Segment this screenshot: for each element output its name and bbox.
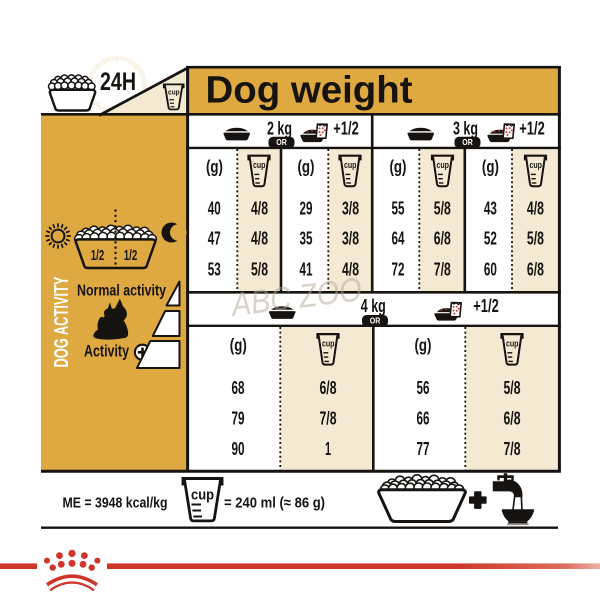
svg-text:60: 60 xyxy=(484,260,497,280)
svg-text:5/8: 5/8 xyxy=(504,378,521,398)
svg-text:6/8: 6/8 xyxy=(320,378,337,398)
svg-text:64: 64 xyxy=(392,229,405,249)
svg-text:(g): (g) xyxy=(415,335,432,355)
svg-text:DOG ACTIVITY: DOG ACTIVITY xyxy=(50,276,73,367)
svg-text:(g): (g) xyxy=(298,156,315,176)
svg-text:79: 79 xyxy=(232,409,245,429)
svg-text:72: 72 xyxy=(392,260,405,280)
svg-text:(g): (g) xyxy=(206,156,223,176)
svg-text:40: 40 xyxy=(208,198,221,218)
svg-text:3 kg: 3 kg xyxy=(453,119,478,139)
svg-text:47: 47 xyxy=(208,229,221,249)
svg-text:7/8: 7/8 xyxy=(504,439,521,459)
svg-text:4/8: 4/8 xyxy=(251,198,268,218)
svg-text:77: 77 xyxy=(417,439,430,459)
svg-text:90: 90 xyxy=(232,439,245,459)
svg-text:Activity: Activity xyxy=(84,343,130,361)
svg-text:1: 1 xyxy=(325,439,331,459)
svg-text:66: 66 xyxy=(417,409,430,429)
svg-text:1/2: 1/2 xyxy=(124,248,138,264)
svg-text:56: 56 xyxy=(417,378,430,398)
svg-text:OR: OR xyxy=(462,137,473,147)
svg-text:53: 53 xyxy=(208,260,221,280)
svg-text:3/8: 3/8 xyxy=(342,229,359,249)
svg-text:1/2: 1/2 xyxy=(91,248,105,264)
svg-text:OR: OR xyxy=(276,137,287,147)
svg-text:ME = 3948 kcal/kg: ME = 3948 kcal/kg xyxy=(63,494,168,511)
svg-text:= 240 ml (≈ 86 g): = 240 ml (≈ 86 g) xyxy=(224,495,325,512)
svg-text:7/8: 7/8 xyxy=(320,409,337,429)
svg-text:(g): (g) xyxy=(230,335,247,355)
svg-text:+1/2: +1/2 xyxy=(519,119,545,139)
svg-text:35: 35 xyxy=(300,229,313,249)
svg-text:5/8: 5/8 xyxy=(527,229,544,249)
svg-text:52: 52 xyxy=(484,229,497,249)
svg-text:6/8: 6/8 xyxy=(527,260,544,280)
svg-text:6/8: 6/8 xyxy=(504,409,521,429)
svg-text:55: 55 xyxy=(392,198,405,218)
svg-text:Dog weight: Dog weight xyxy=(206,70,413,112)
svg-text:6/8: 6/8 xyxy=(434,229,451,249)
svg-text:5/8: 5/8 xyxy=(251,260,268,280)
svg-text:3/8: 3/8 xyxy=(342,198,359,218)
svg-text:+1/2: +1/2 xyxy=(473,296,499,316)
svg-text:+1/2: +1/2 xyxy=(333,119,359,139)
svg-text:29: 29 xyxy=(300,198,313,218)
svg-text:68: 68 xyxy=(232,378,245,398)
svg-text:4/8: 4/8 xyxy=(527,198,544,218)
svg-text:(g): (g) xyxy=(390,156,407,176)
svg-text:24H: 24H xyxy=(100,68,136,96)
svg-text:(g): (g) xyxy=(482,156,499,176)
svg-text:4 kg: 4 kg xyxy=(361,296,386,316)
svg-text:43: 43 xyxy=(484,198,497,218)
svg-text:7/8: 7/8 xyxy=(434,260,451,280)
svg-text:2 kg: 2 kg xyxy=(267,119,292,139)
svg-text:4/8: 4/8 xyxy=(251,229,268,249)
svg-text:Normal activity: Normal activity xyxy=(77,283,166,300)
svg-text:OR: OR xyxy=(370,315,381,325)
svg-text:cup: cup xyxy=(191,488,214,504)
svg-text:5/8: 5/8 xyxy=(434,198,451,218)
